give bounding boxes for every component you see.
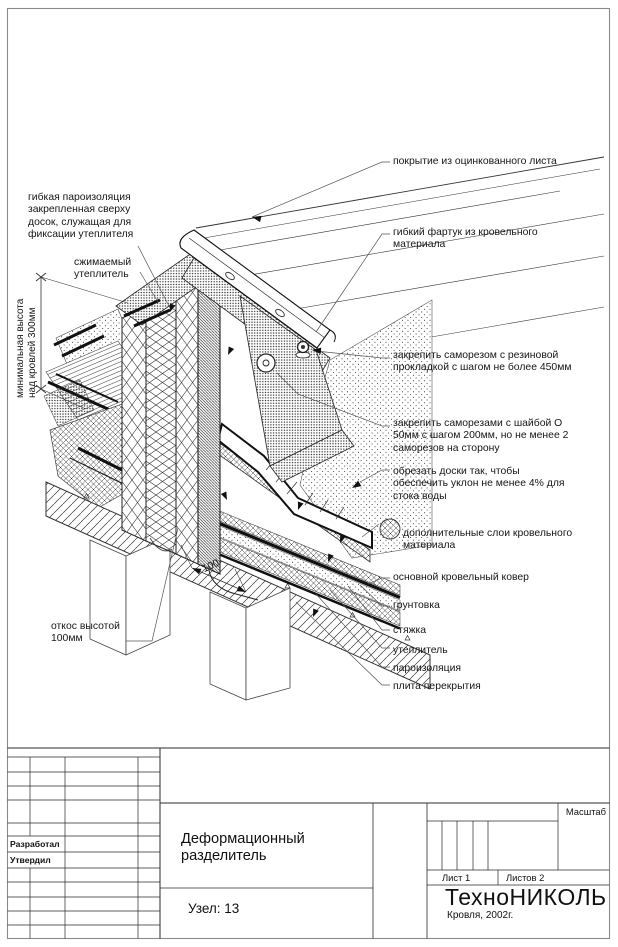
label-compressible-insulation: сжимаемый утеплитель: [74, 257, 154, 282]
titleblock-node-number: Узел: 13: [188, 901, 239, 916]
titleblock-sheets-label: Листов 2: [506, 872, 544, 883]
label-insulation: утеплитель: [393, 645, 611, 657]
detail-sample-circle: [380, 519, 400, 539]
label-primer: грунтовка: [393, 600, 611, 612]
label-cut-boards-slope: обрезать доски так, чтобы обеспечить укл…: [393, 466, 611, 503]
label-screw-rubber-gasket: закрепить саморезом с резиновой прокладк…: [393, 350, 611, 375]
label-screw-with-washer: закрепить саморезами с шайбой О 50мм с ш…: [393, 418, 611, 455]
label-screed: стяжка: [393, 625, 611, 637]
label-flexible-apron: гибкий фартук из кровельного материала: [393, 227, 611, 252]
label-slope-height-100mm: откос высотой 100мм: [51, 621, 146, 646]
drawing-sheet: гибкая пароизоляция закрепленная сверху …: [0, 0, 618, 947]
label-vapor-barrier: пароизоляция: [393, 663, 611, 675]
label-galvanized-sheet-cover: покрытие из оцинкованного листа: [393, 156, 611, 168]
label-min-height-over-roof: минимальная высота над кровлей 300мм: [15, 264, 38, 398]
titleblock-approved-label: Утвердил: [10, 855, 51, 865]
titleblock-developed-label: Разработал: [10, 839, 60, 849]
titleblock-scale-label: Масштаб: [552, 806, 606, 817]
label-additional-roofing-layers: дополнительные слои кровельного материал…: [403, 528, 611, 553]
label-floor-slab: плита перекрытия: [393, 681, 611, 693]
label-flexible-vapor-barrier: гибкая пароизоляция закрепленная сверху …: [28, 192, 158, 241]
titleblock-drawing-title: Деформационный разделитель: [181, 831, 305, 865]
titleblock-company-subtitle: Кровля, 2002г.: [447, 910, 513, 921]
titleblock-company-name: ТехноНИКОЛЬ: [445, 884, 607, 911]
titleblock-sheet-label: Лист 1: [442, 872, 470, 883]
label-main-roofing-carpet: основной кровельный ковер: [393, 572, 611, 584]
